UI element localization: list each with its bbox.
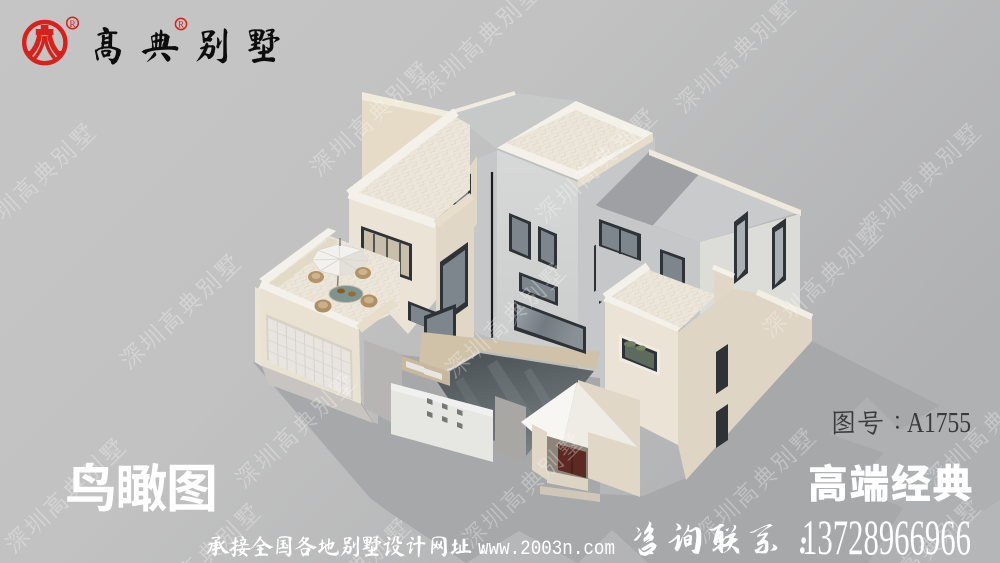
- svg-text:A1755: A1755: [907, 407, 971, 439]
- svg-text:www.2003n.com: www.2003n.com: [478, 538, 615, 561]
- svg-text:13728966966: 13728966966: [802, 509, 971, 563]
- svg-text:R: R: [178, 20, 184, 30]
- svg-text:R: R: [69, 20, 76, 30]
